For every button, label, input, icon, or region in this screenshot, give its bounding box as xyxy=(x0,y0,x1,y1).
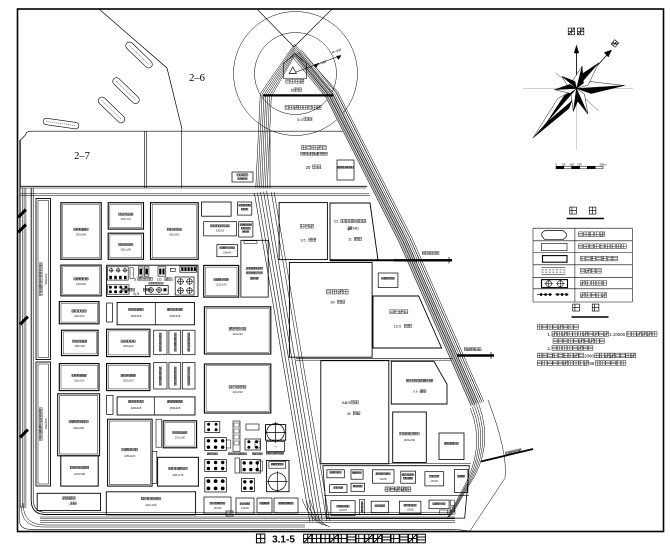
svg-text:380x280: 380x280 xyxy=(76,232,87,236)
svg-text:30: 30 xyxy=(347,412,351,416)
svg-text:2–6: 2–6 xyxy=(189,73,205,84)
svg-text:3.1-5: 3.1-5 xyxy=(272,535,295,546)
svg-text:250x115: 250x115 xyxy=(170,314,181,318)
svg-text:20: 20 xyxy=(306,165,311,170)
svg-text:150: 150 xyxy=(577,162,582,166)
svg-text:100x50: 100x50 xyxy=(406,510,414,512)
svg-text:1.: 1. xyxy=(547,332,551,337)
svg-text:11: 11 xyxy=(348,238,352,242)
svg-text:22: 22 xyxy=(334,218,339,223)
svg-text:85: 85 xyxy=(589,361,594,366)
svg-text:9.5: 9.5 xyxy=(301,239,306,243)
svg-text:230x170: 230x170 xyxy=(121,217,132,221)
svg-text:2–7: 2–7 xyxy=(74,151,90,162)
svg-text:250x160: 250x160 xyxy=(123,344,134,348)
svg-text:360x290: 360x290 xyxy=(73,426,84,430)
svg-text:250x50: 250x50 xyxy=(216,230,225,233)
svg-text:420x220: 420x220 xyxy=(232,332,243,336)
svg-text:200x200: 200x200 xyxy=(404,438,415,442)
svg-text:—: — xyxy=(274,445,278,449)
svg-text:2.: 2. xyxy=(547,346,551,351)
svg-text:220x190: 220x190 xyxy=(175,436,186,440)
svg-text:240x160: 240x160 xyxy=(74,314,85,318)
svg-text:): ) xyxy=(172,277,173,281)
svg-text:50: 50 xyxy=(562,162,566,166)
svg-text:100x50: 100x50 xyxy=(379,479,387,481)
svg-text:240x200: 240x200 xyxy=(74,472,85,476)
svg-text:5.0: 5.0 xyxy=(297,117,303,122)
svg-text:ABS: ABS xyxy=(342,400,350,405)
svg-text:230x115: 230x115 xyxy=(131,406,142,410)
svg-text:(11: (11 xyxy=(157,277,162,281)
svg-text:1:10000: 1:10000 xyxy=(609,332,625,337)
svg-text:100: 100 xyxy=(569,162,574,166)
svg-text:240x200: 240x200 xyxy=(76,282,87,286)
svg-text:260x190: 260x190 xyxy=(121,248,132,252)
svg-text:250x160: 250x160 xyxy=(75,344,86,348)
svg-text:100x50: 100x50 xyxy=(241,507,250,510)
svg-text:9.6: 9.6 xyxy=(413,390,418,394)
svg-text:250x160: 250x160 xyxy=(123,378,134,382)
svg-text:220x240: 220x240 xyxy=(216,283,227,287)
svg-text:420x105: 420x105 xyxy=(145,503,156,507)
svg-text:12.0: 12.0 xyxy=(394,325,401,329)
svg-text:580x100: 580x100 xyxy=(44,273,48,284)
svg-text:420x320: 420x320 xyxy=(232,390,243,394)
svg-text:305x420: 305x420 xyxy=(124,454,135,458)
svg-text:150x40: 150x40 xyxy=(223,252,232,255)
svg-text:300x300: 300x300 xyxy=(169,232,180,236)
svg-text:250x160: 250x160 xyxy=(74,378,85,382)
svg-text:250x115: 250x115 xyxy=(170,406,181,410)
svg-text:250x115: 250x115 xyxy=(131,314,142,318)
svg-text:2000: 2000 xyxy=(584,353,594,358)
svg-text:150x50: 150x50 xyxy=(214,507,223,510)
svg-text:5(11: 5(11 xyxy=(133,292,139,296)
svg-text:30: 30 xyxy=(330,301,334,305)
svg-text:150x50: 150x50 xyxy=(431,481,439,483)
svg-text:300m: 300m xyxy=(600,162,608,166)
svg-text:790x100: 790x100 xyxy=(44,418,48,429)
svg-text:290x175: 290x175 xyxy=(172,473,183,477)
svg-text:100x50: 100x50 xyxy=(339,510,347,512)
